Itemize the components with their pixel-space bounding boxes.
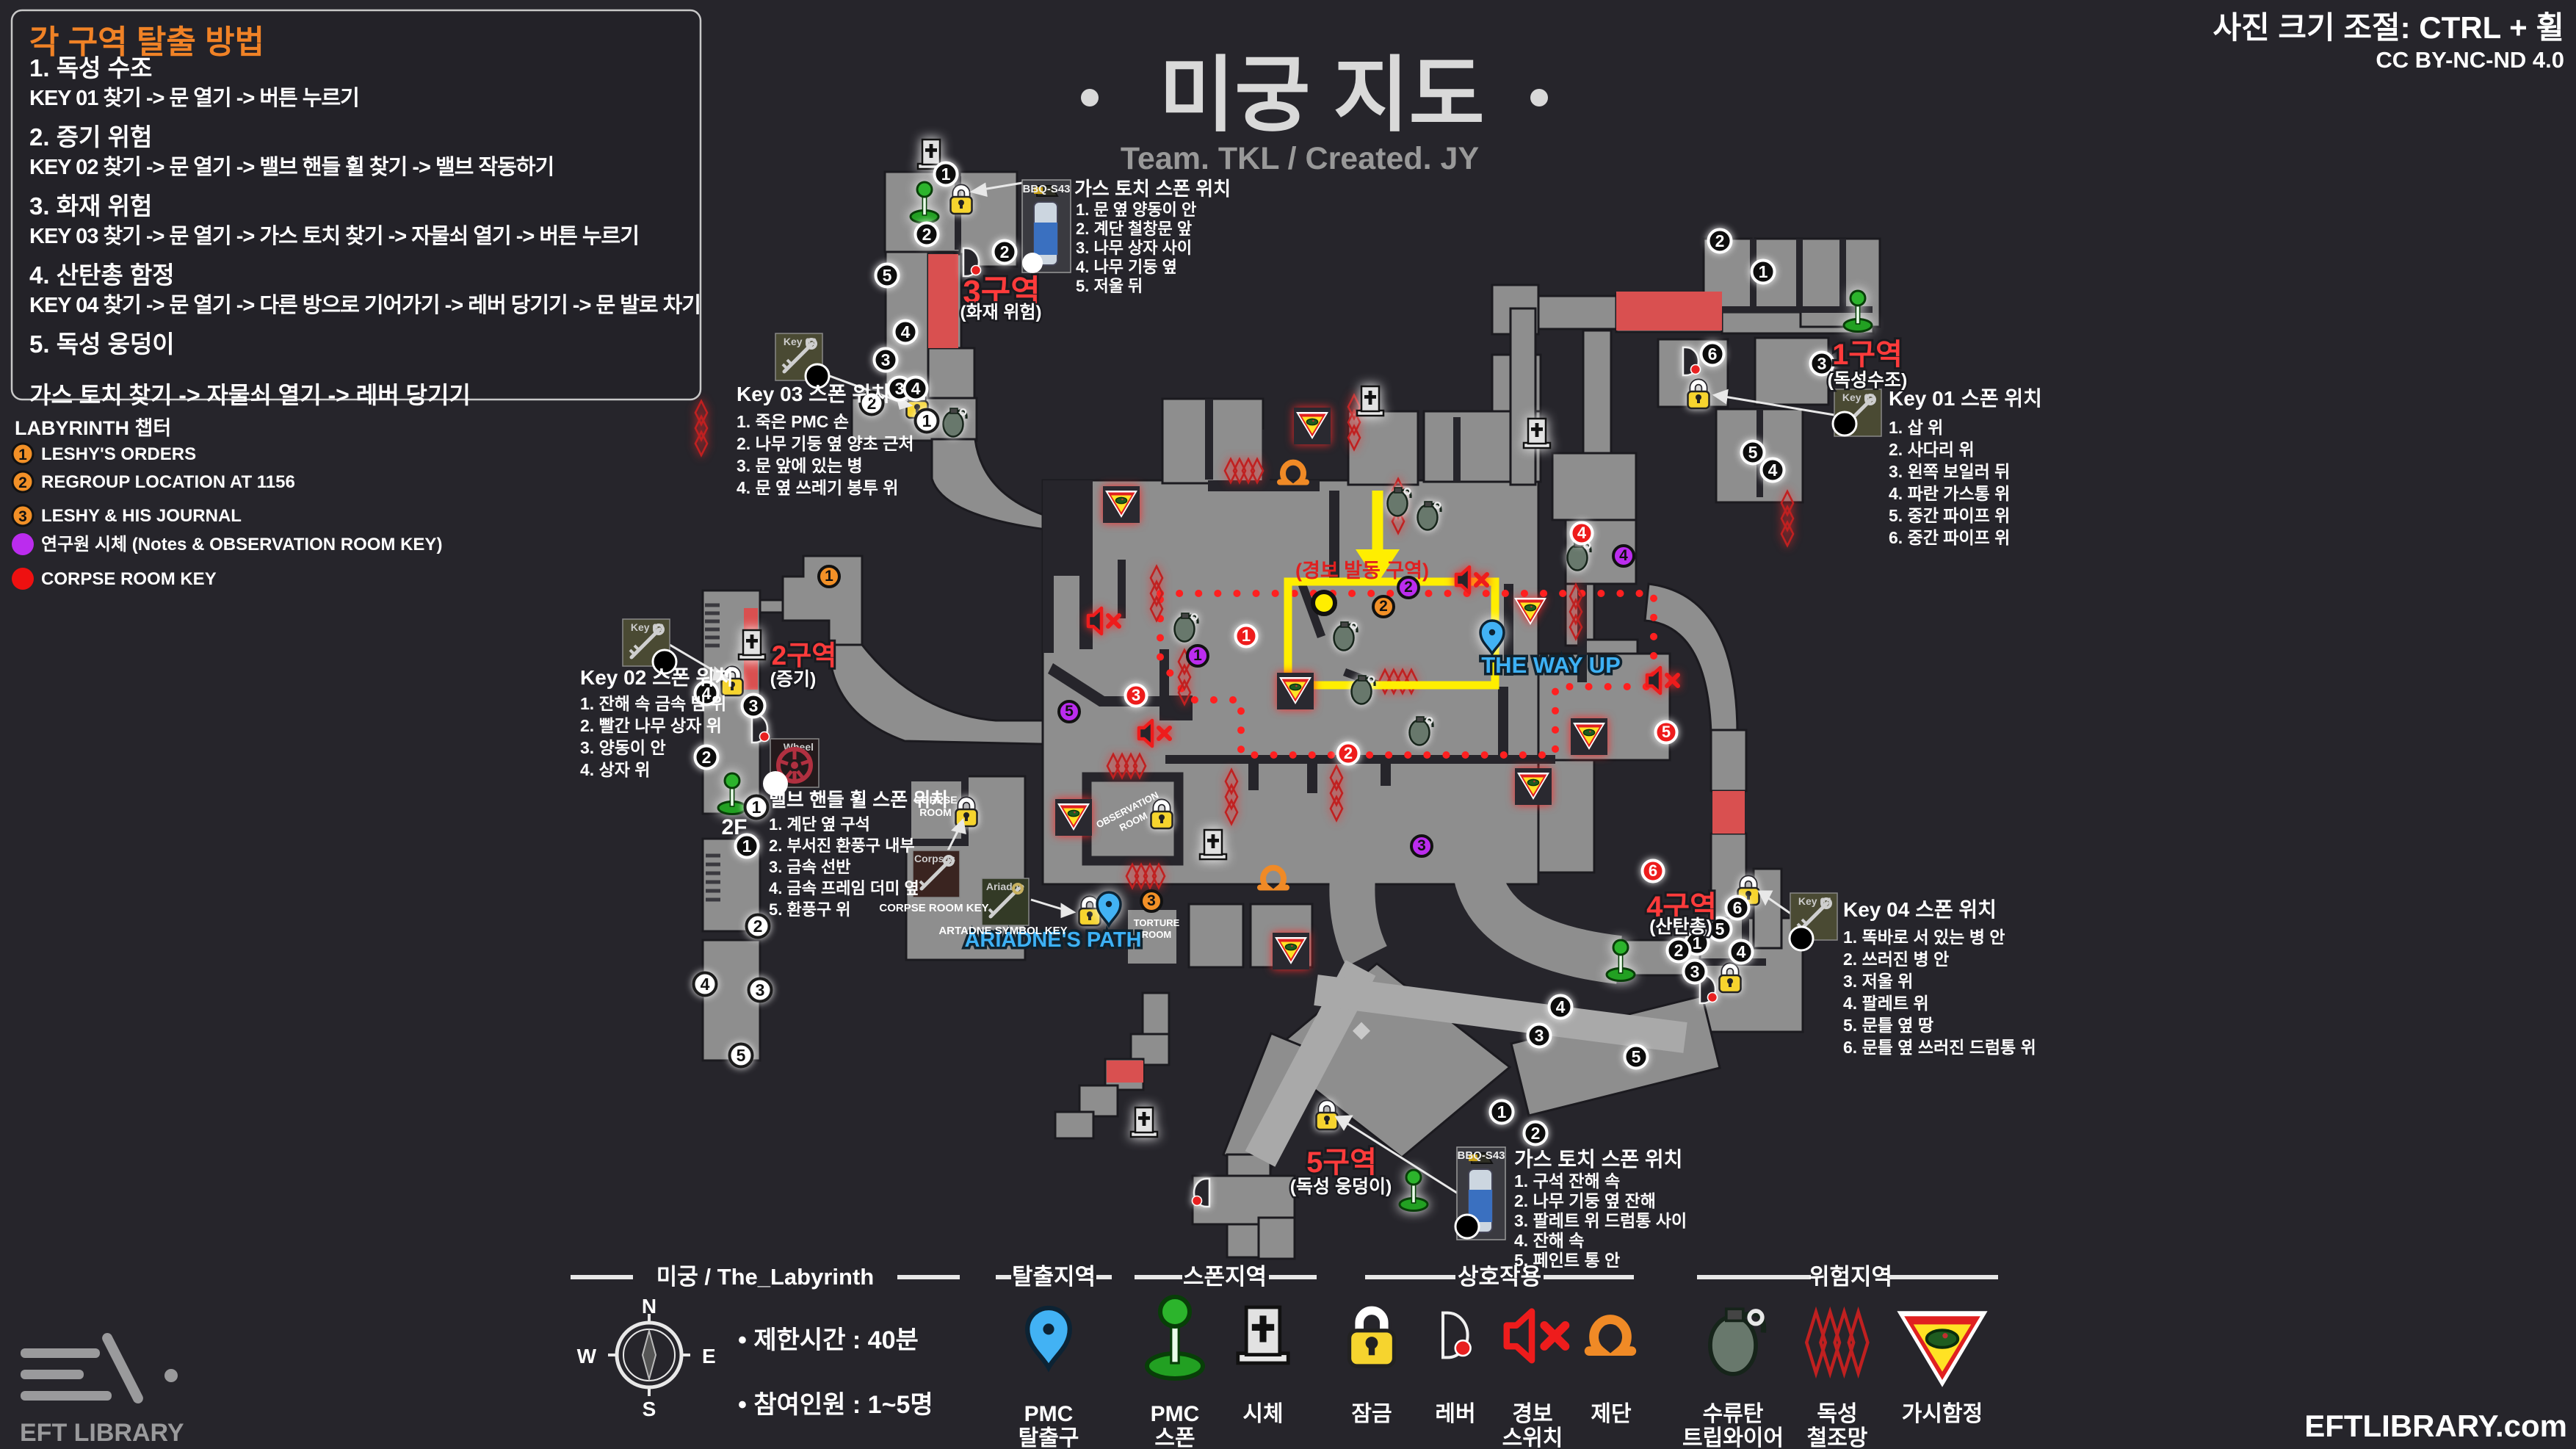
svg-text:3: 3 (1817, 354, 1827, 373)
svg-text:4: 4 (1737, 942, 1746, 961)
svg-text:3. 양동이 안: 3. 양동이 안 (580, 738, 666, 757)
svg-text:경보: 경보 (1512, 1402, 1552, 1426)
svg-text:4: 4 (1556, 997, 1566, 1016)
svg-text:레버: 레버 (1435, 1402, 1475, 1426)
svg-text:6. 문틀 옆 쓰러진 드럼통 위: 6. 문틀 옆 쓰러진 드럼통 위 (1843, 1038, 2036, 1057)
svg-text:REGROUP LOCATION AT 1156: REGROUP LOCATION AT 1156 (41, 472, 295, 492)
svg-text:트립와이어: 트립와이어 (1682, 1426, 1784, 1449)
svg-text:가스 토치 찾기 -> 자물쇠 열기 -> 레버 당기기: 가스 토치 찾기 -> 자물쇠 열기 -> 레버 당기기 (29, 382, 471, 408)
svg-text:위험지역: 위험지역 (1809, 1264, 1892, 1290)
svg-text:5: 5 (1065, 703, 1074, 720)
svg-text:3: 3 (1535, 1026, 1544, 1045)
svg-text:2. 쓰러진 병 안: 2. 쓰러진 병 안 (1843, 950, 1949, 969)
svg-text:1구역: 1구역 (1832, 339, 1903, 371)
svg-text:N: N (642, 1295, 656, 1318)
svg-text:CORPSE ROOM KEY: CORPSE ROOM KEY (879, 902, 988, 914)
svg-text:4. 금속 프레임 더미 옆: 4. 금속 프레임 더미 옆 (769, 879, 919, 897)
svg-text:4: 4 (911, 379, 921, 398)
svg-text:EFTLIBRARY.com: EFTLIBRARY.com (2304, 1409, 2567, 1443)
svg-text:2. 부서진 환풍구 내부: 2. 부서진 환풍구 내부 (769, 836, 915, 855)
svg-text:2: 2 (753, 917, 763, 936)
svg-text:2. 빨간 나무 상자 위: 2. 빨간 나무 상자 위 (580, 716, 722, 735)
svg-text:1. 삽 위: 1. 삽 위 (1889, 418, 1943, 437)
svg-text:4. 팔레트 위: 4. 팔레트 위 (1843, 994, 1929, 1013)
svg-text:4. 문 옆 쓰레기 봉투 위: 4. 문 옆 쓰레기 봉투 위 (737, 478, 898, 497)
svg-text:사진 크기 조절: CTRL + 휠: 사진 크기 조절: CTRL + 휠 (2213, 10, 2564, 45)
svg-text:미궁 / The_Labyrinth: 미궁 / The_Labyrinth (656, 1264, 874, 1290)
svg-text:(경보 발동 구역): (경보 발동 구역) (1295, 560, 1429, 582)
svg-text:ARTADNE SYMBOL KEY: ARTADNE SYMBOL KEY (938, 925, 1067, 937)
svg-text:1. 구석 잔해 속: 1. 구석 잔해 속 (1514, 1171, 1620, 1190)
svg-text:TORTURE: TORTURE (1134, 917, 1180, 928)
svg-text:6: 6 (1733, 898, 1743, 917)
svg-text:1. 똑바로 서 있는 병 안: 1. 똑바로 서 있는 병 안 (1843, 928, 2005, 947)
svg-text:Key 02: Key 02 (631, 621, 664, 633)
svg-text:2. 나무 기둥 옆 잔해: 2. 나무 기둥 옆 잔해 (1514, 1191, 1656, 1210)
svg-text:• 제한시간 : 40분: • 제한시간 : 40분 (738, 1326, 919, 1354)
svg-text:Team. TKL / Created. JY: Team. TKL / Created. JY (1121, 141, 1479, 176)
svg-text:5: 5 (737, 1046, 746, 1065)
svg-text:가스 토치 스폰 위치: 가스 토치 스폰 위치 (1074, 178, 1231, 200)
svg-text:KEY 03 찾기 -> 문 열기 -> 가스 토치 찾기: KEY 03 찾기 -> 문 열기 -> 가스 토치 찾기 -> 자물쇠 열기 … (29, 224, 639, 248)
svg-text:6. 중간 파이프 위: 6. 중간 파이프 위 (1889, 528, 2010, 547)
svg-text:2: 2 (1000, 242, 1010, 261)
svg-text:Key 03: Key 03 (784, 336, 817, 347)
svg-text:PMC: PMC (1151, 1402, 1200, 1426)
svg-text:3. 나무 상자 사이: 3. 나무 상자 사이 (1076, 239, 1192, 257)
svg-text:1: 1 (941, 165, 951, 184)
svg-text:스위치: 스위치 (1502, 1426, 1563, 1449)
svg-text:4: 4 (701, 975, 710, 994)
svg-text:4. 산탄총 함정: 4. 산탄총 함정 (29, 261, 175, 289)
svg-text:4: 4 (901, 322, 911, 342)
svg-text:잠금: 잠금 (1351, 1402, 1392, 1426)
svg-text:6: 6 (1649, 861, 1657, 880)
svg-text:2. 사다리 위: 2. 사다리 위 (1889, 440, 1975, 459)
svg-text:LESHY & HIS JOURNAL: LESHY & HIS JOURNAL (41, 506, 242, 526)
svg-text:CORPSE ROOM KEY: CORPSE ROOM KEY (41, 569, 217, 589)
svg-text:철조망: 철조망 (1807, 1426, 1868, 1449)
svg-text:• 참여인원 : 1~5명: • 참여인원 : 1~5명 (738, 1391, 933, 1419)
svg-text:Key 04: Key 04 (1798, 895, 1831, 907)
svg-text:2: 2 (702, 748, 712, 767)
svg-text:3. 저울 위: 3. 저울 위 (1843, 972, 1913, 991)
svg-text:1: 1 (1759, 262, 1768, 281)
svg-text:2. 증기 위험: 2. 증기 위험 (29, 123, 152, 151)
svg-text:미궁 지도: 미궁 지도 (1159, 49, 1484, 141)
svg-text:3: 3 (1690, 962, 1700, 981)
svg-text:5. 환풍구 위: 5. 환풍구 위 (769, 900, 851, 919)
svg-text:4: 4 (1768, 460, 1778, 480)
svg-text:상호작용: 상호작용 (1458, 1264, 1541, 1290)
svg-text:LABYRINTH 챕터: LABYRINTH 챕터 (15, 417, 171, 439)
svg-text:탈출구: 탈출구 (1019, 1426, 1079, 1449)
svg-text:5: 5 (1662, 723, 1671, 741)
svg-text:3: 3 (1132, 686, 1140, 704)
svg-text:2F: 2F (721, 815, 747, 839)
svg-text:3: 3 (18, 508, 27, 525)
svg-text:W: W (577, 1345, 597, 1367)
svg-text:수류탄: 수류탄 (1703, 1402, 1764, 1426)
svg-text:4. 파란 가스통 위: 4. 파란 가스통 위 (1889, 484, 2010, 503)
svg-text:3: 3 (881, 350, 891, 369)
svg-text:탈출지역: 탈출지역 (1012, 1264, 1096, 1290)
svg-text:2: 2 (1674, 941, 1684, 960)
svg-text:BBQ-S43: BBQ-S43 (1457, 1149, 1505, 1162)
svg-text:4. 나무 기둥 옆: 4. 나무 기둥 옆 (1076, 258, 1177, 276)
svg-text:3: 3 (1417, 837, 1426, 854)
svg-text:2: 2 (18, 474, 27, 491)
svg-text:1: 1 (1193, 647, 1202, 664)
svg-text:2: 2 (1379, 598, 1388, 615)
svg-text:2: 2 (1715, 231, 1725, 250)
svg-text:4: 4 (1619, 547, 1628, 564)
svg-text:3. 문 앞에 있는 병: 3. 문 앞에 있는 병 (737, 456, 863, 475)
svg-text:KEY 02 찾기 -> 문 열기 -> 밸브 핸들 휠 찾: KEY 02 찾기 -> 문 열기 -> 밸브 핸들 휠 찾기 -> 밸브 작동… (29, 155, 554, 179)
svg-text:4. 상자 위: 4. 상자 위 (580, 760, 650, 779)
svg-text:5. 문틀 옆 땅: 5. 문틀 옆 땅 (1843, 1016, 1933, 1035)
svg-text:가시함정: 가시함정 (1902, 1402, 1983, 1426)
svg-text:PMC: PMC (1024, 1402, 1074, 1426)
svg-text:THE WAY UP: THE WAY UP (1481, 652, 1621, 678)
svg-text:2: 2 (1531, 1124, 1541, 1143)
svg-text:BBQ-S43: BBQ-S43 (1022, 183, 1070, 195)
svg-text:3. 왼쪽 보일러 뒤: 3. 왼쪽 보일러 뒤 (1889, 462, 2010, 481)
svg-text:2: 2 (1344, 744, 1353, 762)
svg-text:1. 독성 수조: 1. 독성 수조 (29, 54, 152, 82)
svg-text:3: 3 (895, 379, 905, 398)
svg-text:스폰: 스폰 (1154, 1426, 1195, 1449)
svg-text:3: 3 (749, 696, 759, 715)
svg-text:3: 3 (756, 980, 765, 1000)
svg-text:시체: 시체 (1242, 1402, 1283, 1426)
svg-text:5. 저울 뒤: 5. 저울 뒤 (1076, 277, 1143, 295)
svg-text:3. 팔레트 위 드럼통 사이: 3. 팔레트 위 드럼통 사이 (1514, 1211, 1687, 1230)
svg-text:2구역: 2구역 (772, 640, 837, 671)
svg-text:Key 04 스폰 위치: Key 04 스폰 위치 (1843, 898, 1997, 921)
svg-text:1: 1 (752, 798, 761, 817)
svg-text:2. 나무 기둥 옆 양초 근처: 2. 나무 기둥 옆 양초 근처 (737, 434, 914, 453)
svg-text:Key 01 스폰 위치: Key 01 스폰 위치 (1889, 387, 2042, 410)
svg-text:(증기): (증기) (770, 669, 817, 690)
svg-text:1. 문 옆 양동이 안: 1. 문 옆 양동이 안 (1076, 200, 1196, 219)
svg-text:1: 1 (922, 411, 932, 430)
svg-text:KEY 04 찾기 -> 문 열기 -> 다른 방으로 기어: KEY 04 찾기 -> 문 열기 -> 다른 방으로 기어가기 -> 레버 당… (29, 293, 701, 317)
svg-text:(산탄총): (산탄총) (1649, 917, 1712, 937)
svg-text:2. 계단 철창문 앞: 2. 계단 철창문 앞 (1076, 220, 1192, 238)
svg-text:Key 02 스폰 위치: Key 02 스폰 위치 (580, 666, 734, 689)
svg-text:3. 화재 위험: 3. 화재 위험 (29, 192, 152, 220)
svg-text:1. 계단 옆 구석: 1. 계단 옆 구석 (769, 815, 870, 834)
svg-text:5: 5 (1748, 443, 1758, 462)
svg-text:KEY 01 찾기 -> 문 열기 -> 버튼 누르기: KEY 01 찾기 -> 문 열기 -> 버튼 누르기 (29, 86, 359, 110)
svg-text:(독성 웅덩이): (독성 웅덩이) (1290, 1177, 1392, 1197)
svg-text:1: 1 (18, 447, 27, 463)
svg-text:1. 죽은 PMC 손: 1. 죽은 PMC 손 (737, 412, 849, 431)
svg-text:5: 5 (1632, 1047, 1641, 1066)
svg-text:1: 1 (1242, 626, 1251, 645)
svg-text:독성: 독성 (1817, 1402, 1857, 1426)
svg-text:밸브 핸들 휠 스폰 위치: 밸브 핸들 휠 스폰 위치 (769, 789, 948, 811)
svg-text:5: 5 (883, 266, 892, 285)
svg-text:3: 3 (1147, 892, 1156, 909)
svg-text:2: 2 (922, 225, 932, 244)
svg-text:5. 독성 웅덩이: 5. 독성 웅덩이 (29, 330, 175, 358)
svg-text:6: 6 (1708, 344, 1718, 364)
svg-text:E: E (702, 1345, 716, 1367)
svg-text:(화재 위험): (화재 위험) (960, 303, 1042, 322)
svg-text:4: 4 (1577, 524, 1587, 542)
svg-text:가스 토치 스폰 위치: 가스 토치 스폰 위치 (1514, 1148, 1682, 1171)
svg-text:Key 01: Key 01 (1842, 391, 1875, 403)
svg-text:4. 잔해 속: 4. 잔해 속 (1514, 1231, 1584, 1250)
svg-text:1. 잔해 속 금속 빔 위: 1. 잔해 속 금속 빔 위 (580, 694, 726, 713)
svg-text:EFT LIBRARY: EFT LIBRARY (20, 1419, 184, 1447)
svg-text:S: S (643, 1398, 656, 1420)
svg-text:1: 1 (825, 568, 833, 585)
svg-text:제단: 제단 (1591, 1402, 1632, 1426)
svg-text:ROOM: ROOM (1142, 929, 1171, 940)
svg-text:1: 1 (1497, 1102, 1507, 1121)
svg-text:CC BY-NC-ND 4.0: CC BY-NC-ND 4.0 (2376, 47, 2564, 73)
svg-text:Key 03 스폰 위치: Key 03 스폰 위치 (737, 383, 890, 405)
svg-text:스폰지역: 스폰지역 (1183, 1264, 1267, 1290)
svg-text:연구원 시체 (Notes & OBSERVATION RO: 연구원 시체 (Notes & OBSERVATION ROOM KEY) (41, 535, 442, 554)
svg-text:3. 금속 선반: 3. 금속 선반 (769, 858, 851, 876)
svg-text:5. 중간 파이프 위: 5. 중간 파이프 위 (1889, 506, 2010, 525)
svg-text:LESHY'S ORDERS: LESHY'S ORDERS (41, 444, 196, 464)
svg-text:5구역: 5구역 (1306, 1146, 1377, 1179)
